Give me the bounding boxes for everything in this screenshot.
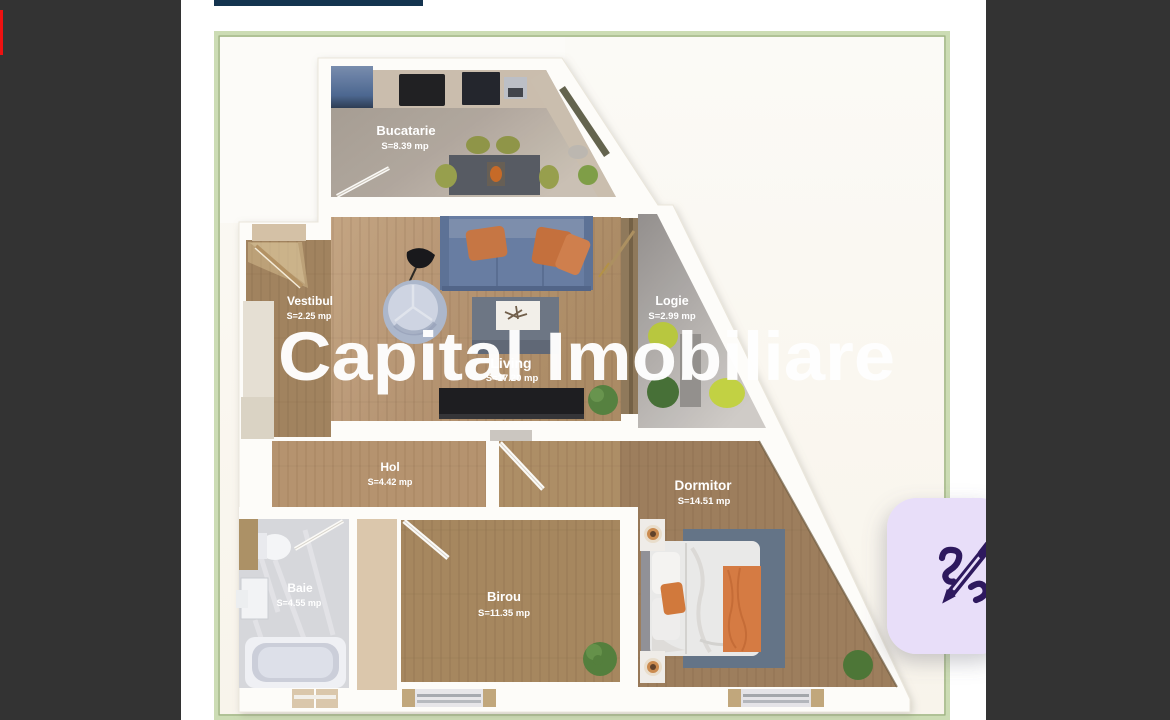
- svg-text:Baie: Baie: [287, 581, 313, 595]
- svg-text:Capital Imobiliare: Capital Imobiliare: [278, 318, 895, 395]
- svg-text:Vestibul: Vestibul: [287, 294, 333, 308]
- svg-text:Hol: Hol: [380, 460, 399, 474]
- svg-text:S=8.39 mp: S=8.39 mp: [381, 141, 428, 152]
- svg-text:Dormitor: Dormitor: [675, 478, 733, 493]
- svg-text:S=11.35 mp: S=11.35 mp: [478, 608, 530, 619]
- svg-text:Birou: Birou: [487, 589, 521, 604]
- svg-text:S=4.42 mp: S=4.42 mp: [368, 477, 413, 487]
- svg-text:S=14.51 mp: S=14.51 mp: [678, 496, 731, 507]
- svg-text:S=4.55 mp: S=4.55 mp: [277, 598, 322, 608]
- svg-text:Bucatarie: Bucatarie: [376, 123, 435, 138]
- svg-text:Logie: Logie: [655, 294, 688, 308]
